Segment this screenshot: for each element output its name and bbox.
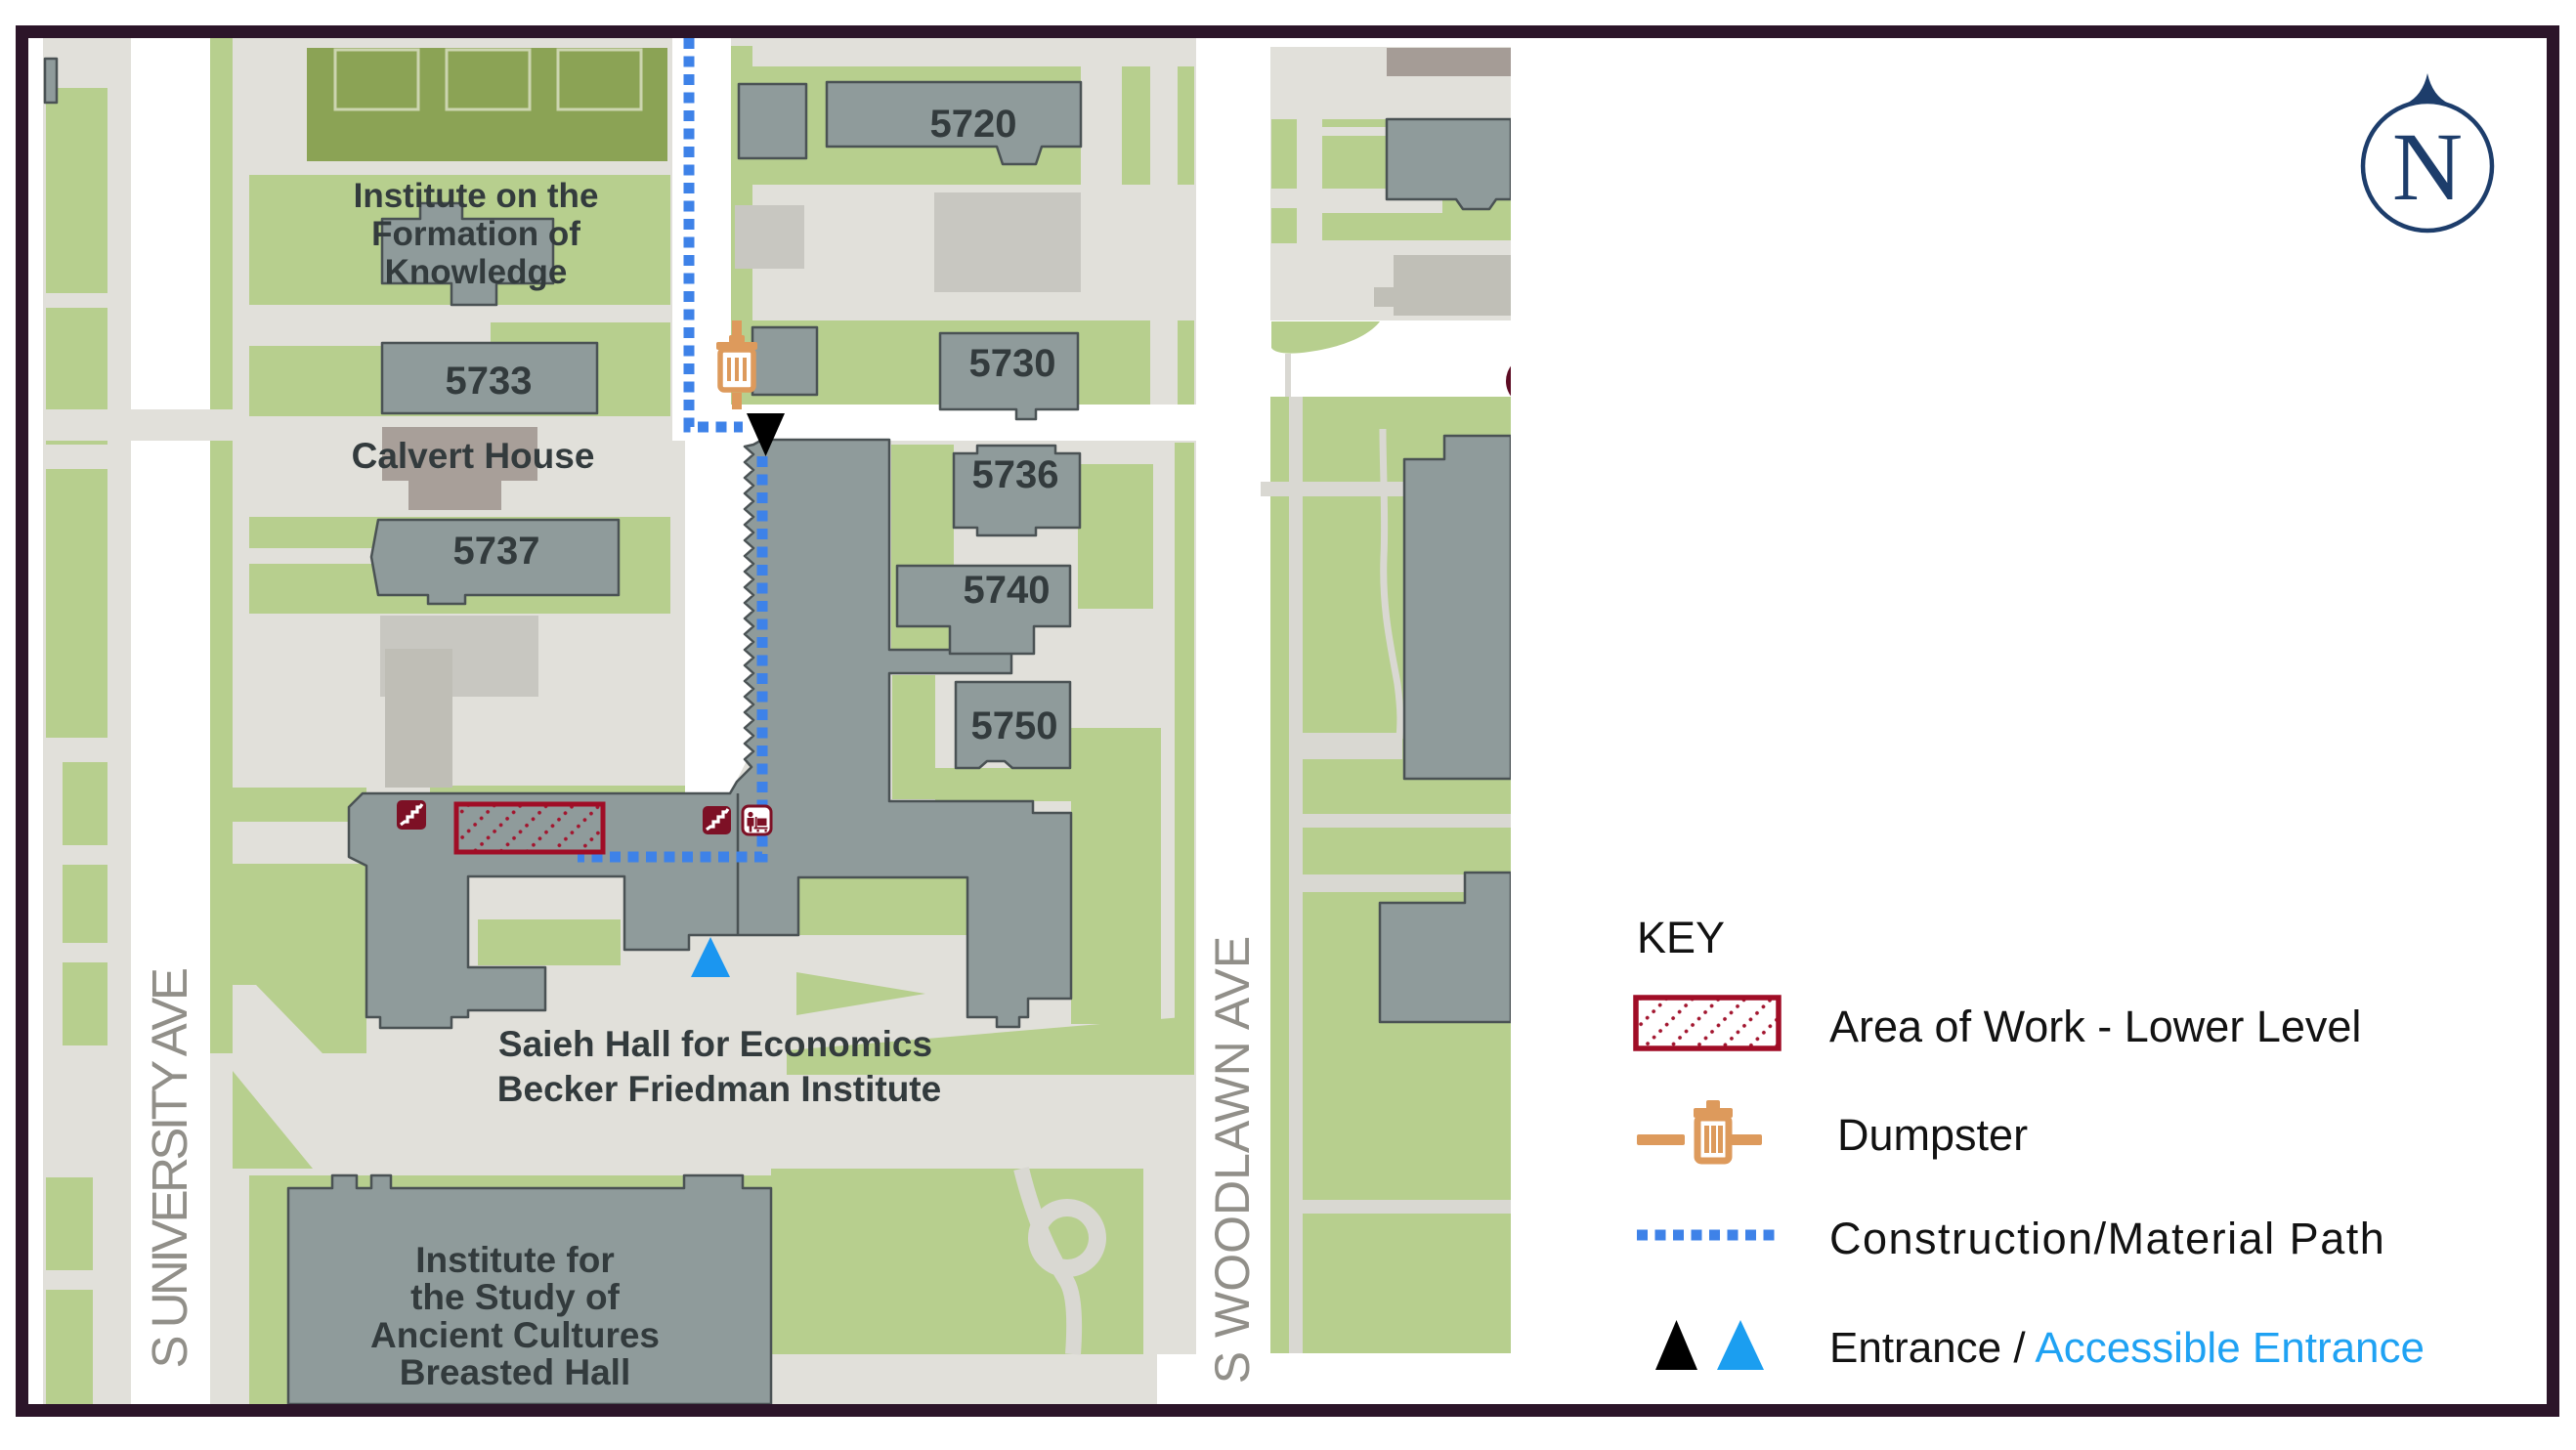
svg-text:5750: 5750 bbox=[971, 704, 1058, 747]
svg-text:5720: 5720 bbox=[930, 103, 1017, 146]
svg-text:5733: 5733 bbox=[446, 360, 533, 403]
svg-text:the Study of: the Study of bbox=[410, 1277, 620, 1317]
svg-text:KEY: KEY bbox=[1637, 913, 1725, 962]
svg-text:Saieh Hall for Economics: Saieh Hall for Economics bbox=[498, 1024, 932, 1064]
svg-text:Formation of: Formation of bbox=[371, 215, 580, 253]
svg-text:S UNIVERSITY AVE: S UNIVERSITY AVE bbox=[142, 969, 197, 1368]
svg-text:5737: 5737 bbox=[453, 530, 540, 573]
svg-text:5730: 5730 bbox=[969, 342, 1056, 385]
svg-text:Calvert House: Calvert House bbox=[352, 436, 595, 476]
svg-text:Breasted Hall: Breasted Hall bbox=[400, 1352, 631, 1392]
svg-text:5740: 5740 bbox=[964, 569, 1051, 612]
svg-text:Knowledge: Knowledge bbox=[385, 253, 568, 291]
svg-text:Becker Friedman Institute: Becker Friedman Institute bbox=[497, 1069, 941, 1109]
svg-text:S WOODLAWN AVE: S WOODLAWN AVE bbox=[1205, 936, 1260, 1384]
svg-text:Dumpster: Dumpster bbox=[1837, 1110, 2028, 1160]
svg-text:5736: 5736 bbox=[972, 453, 1059, 496]
svg-text:Institute on the: Institute on the bbox=[354, 177, 599, 215]
svg-text:Construction/Material Path: Construction/Material Path bbox=[1829, 1214, 2385, 1263]
svg-text:Entrance / Accessible Entrance: Entrance / Accessible Entrance bbox=[1829, 1324, 2425, 1372]
svg-text:Institute for: Institute for bbox=[415, 1240, 614, 1280]
svg-text:Area of Work - Lower Level: Area of Work - Lower Level bbox=[1829, 1002, 2361, 1051]
svg-text:Ancient Cultures: Ancient Cultures bbox=[370, 1315, 660, 1355]
svg-text:N: N bbox=[2392, 112, 2463, 221]
